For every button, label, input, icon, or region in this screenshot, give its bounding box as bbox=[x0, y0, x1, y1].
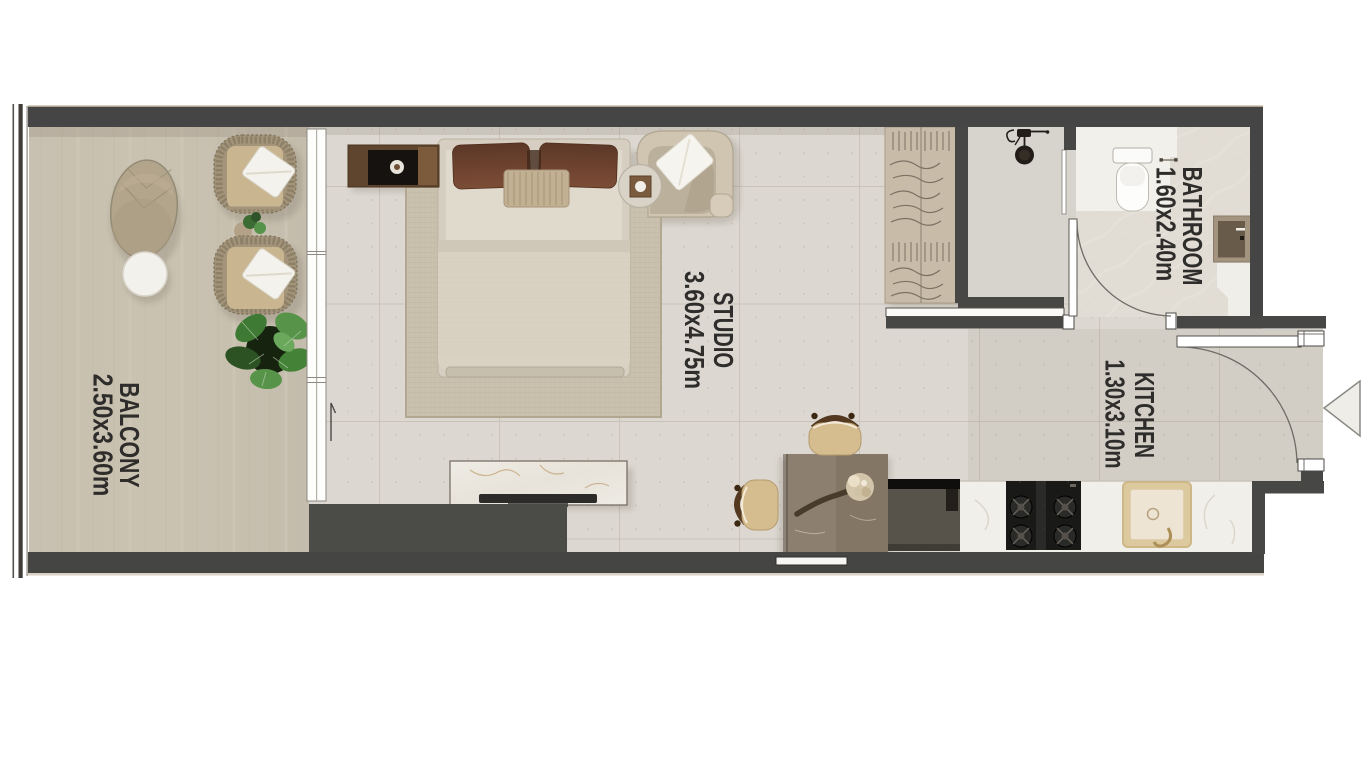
svg-text:STUDIO: STUDIO bbox=[707, 292, 738, 368]
svg-text:3.60x4.75m: 3.60x4.75m bbox=[678, 271, 709, 389]
svg-text:1.60x2.40m: 1.60x2.40m bbox=[1150, 167, 1181, 281]
svg-text:2.50x3.60m: 2.50x3.60m bbox=[87, 374, 118, 497]
svg-text:KITCHEN: KITCHEN bbox=[1128, 372, 1159, 458]
svg-text:1.30x3.10m: 1.30x3.10m bbox=[1099, 359, 1130, 468]
